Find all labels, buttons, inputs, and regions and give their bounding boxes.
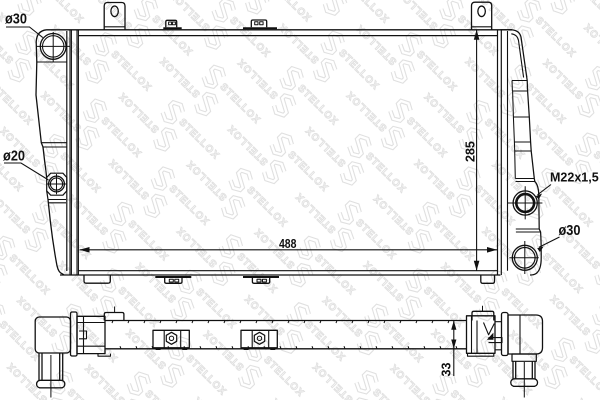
- svg-text:ø20: ø20: [3, 146, 25, 163]
- svg-text:ø30: ø30: [559, 221, 581, 238]
- svg-text:ø30: ø30: [5, 10, 27, 27]
- svg-text:285: 285: [464, 141, 478, 162]
- svg-text:488: 488: [279, 238, 297, 251]
- svg-text:33: 33: [440, 363, 454, 377]
- svg-text:M22x1,5: M22x1,5: [550, 171, 599, 185]
